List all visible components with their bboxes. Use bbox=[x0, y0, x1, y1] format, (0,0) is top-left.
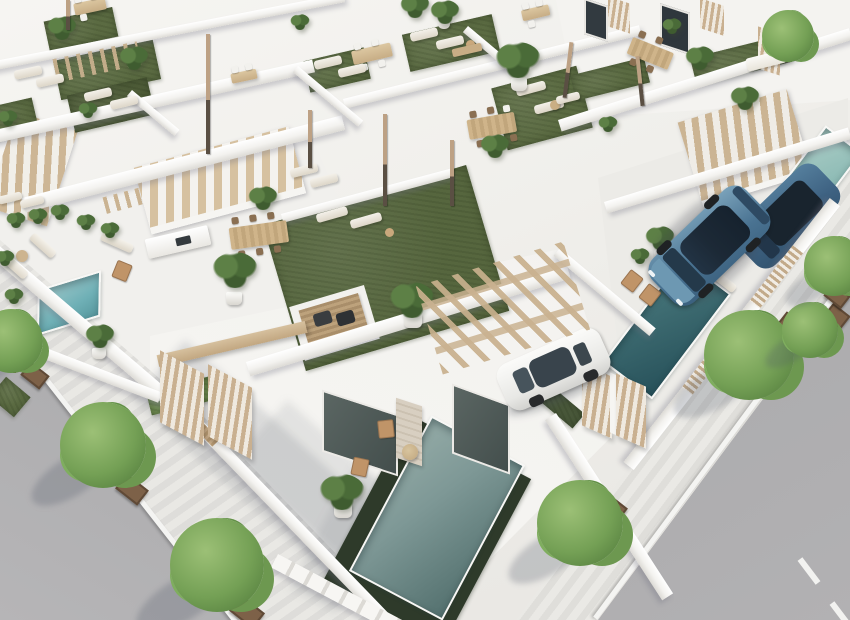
chair bbox=[638, 30, 647, 39]
chair bbox=[655, 36, 664, 45]
street-tree bbox=[782, 302, 842, 362]
potted-palm bbox=[598, 116, 618, 132]
potted-palm bbox=[47, 16, 77, 40]
dining-set bbox=[514, 0, 560, 30]
chair bbox=[469, 110, 477, 118]
potted-palm bbox=[480, 134, 510, 158]
potted-palm bbox=[495, 42, 541, 78]
planter-plant bbox=[50, 204, 70, 220]
planter-plant bbox=[76, 214, 96, 230]
potted-palm bbox=[319, 474, 365, 510]
planter-plant bbox=[100, 222, 120, 238]
closed-parasol bbox=[66, 0, 70, 30]
potted-palm bbox=[78, 102, 98, 118]
deck-chair bbox=[377, 419, 395, 439]
closed-parasol bbox=[206, 34, 210, 154]
potted-palm bbox=[290, 14, 310, 30]
potted-palm bbox=[248, 186, 278, 210]
architectural-render bbox=[0, 0, 850, 620]
chair bbox=[378, 59, 386, 67]
floor-cushion bbox=[312, 310, 333, 328]
tree-canopy bbox=[60, 402, 146, 488]
street-tree bbox=[60, 402, 152, 494]
chair bbox=[274, 245, 282, 253]
potted-palm bbox=[430, 0, 460, 24]
chair bbox=[267, 212, 275, 220]
closed-parasol bbox=[383, 114, 387, 206]
planter-plant bbox=[6, 212, 26, 228]
chair bbox=[231, 65, 239, 73]
potted-palm bbox=[730, 86, 760, 110]
pouf bbox=[385, 228, 394, 237]
street-tree bbox=[804, 236, 850, 300]
gate-slat-panel bbox=[616, 373, 646, 448]
potted-palm bbox=[85, 324, 115, 348]
chair bbox=[231, 217, 239, 225]
chair bbox=[502, 104, 510, 112]
dining-set bbox=[224, 62, 265, 89]
round-table bbox=[402, 444, 418, 460]
round-table bbox=[16, 250, 28, 262]
potted-palm bbox=[212, 252, 258, 288]
plant-pot bbox=[226, 292, 242, 305]
tree-canopy bbox=[170, 518, 264, 612]
planter-plant bbox=[4, 288, 24, 304]
chair bbox=[527, 20, 535, 28]
closed-parasol bbox=[308, 110, 312, 168]
potted-palm bbox=[662, 18, 682, 34]
potted-palm bbox=[400, 0, 430, 18]
closed-parasol bbox=[450, 140, 454, 206]
planter-plant bbox=[28, 208, 48, 224]
chair bbox=[487, 106, 495, 114]
chair bbox=[244, 62, 252, 70]
tree-canopy bbox=[0, 309, 43, 373]
plant-pot bbox=[92, 348, 106, 359]
tree-canopy bbox=[762, 10, 814, 62]
street-tree bbox=[170, 518, 270, 618]
chair bbox=[256, 248, 264, 256]
floor-cushion bbox=[335, 309, 356, 327]
chair bbox=[249, 214, 257, 222]
tree-canopy bbox=[537, 480, 623, 566]
tree-canopy bbox=[782, 302, 838, 358]
chair bbox=[645, 64, 654, 73]
street-tree bbox=[762, 10, 818, 66]
potted-palm bbox=[119, 46, 149, 70]
potted-palm bbox=[685, 46, 715, 70]
street-tree bbox=[0, 309, 51, 381]
street-tree bbox=[537, 480, 629, 572]
plant-pot bbox=[511, 78, 527, 91]
chair bbox=[510, 134, 518, 142]
